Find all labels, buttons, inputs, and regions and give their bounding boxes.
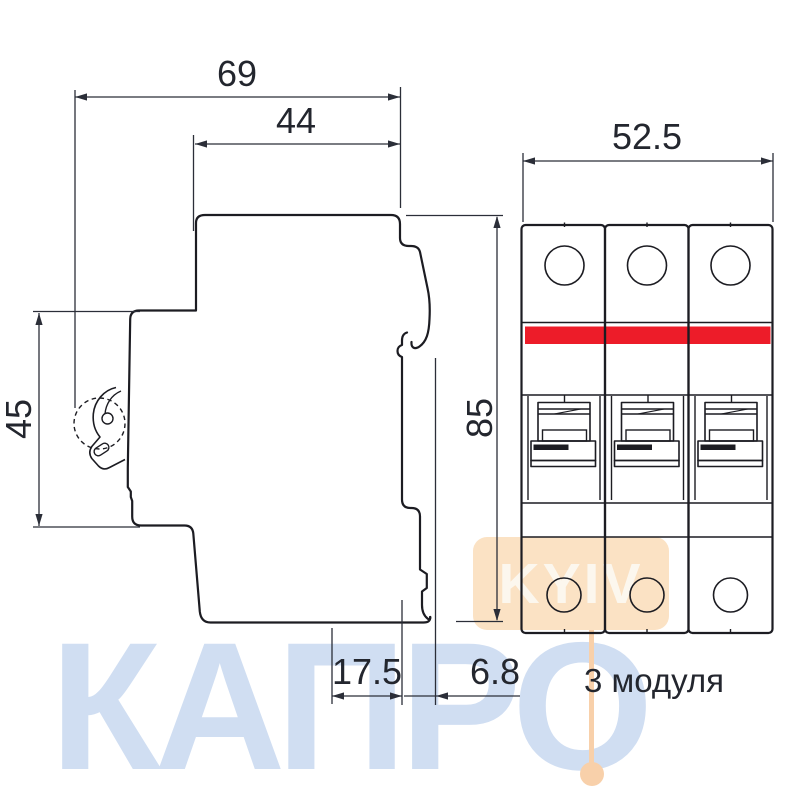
toggle-handle-1 bbox=[528, 396, 600, 501]
module-2-outline bbox=[605, 225, 689, 633]
dimension-17-5: 17.5 bbox=[332, 600, 402, 705]
module-3-outline bbox=[689, 225, 773, 633]
bottom-terminal-screw-3 bbox=[714, 578, 748, 612]
side-view-lower-outline bbox=[128, 311, 430, 623]
toggle-handle-2 bbox=[612, 396, 684, 501]
side-view-front-face bbox=[398, 333, 431, 620]
top-terminal-screw-1 bbox=[545, 246, 584, 285]
toggle-handle-3 bbox=[695, 396, 767, 501]
module-1-outline bbox=[522, 225, 606, 633]
clip-rotation-dashed-circle bbox=[74, 398, 125, 449]
dimension-45: 45 bbox=[0, 312, 140, 528]
top-terminal-screw-2 bbox=[628, 246, 667, 285]
top-terminal-screw-3 bbox=[711, 246, 750, 285]
clip-slot bbox=[93, 442, 111, 458]
dimension-52-5: 52.5 bbox=[523, 116, 773, 222]
dim-label-52-5: 52.5 bbox=[612, 116, 682, 157]
front-view bbox=[522, 223, 773, 634]
technical-drawing-page: КАПРО KYIV bbox=[0, 0, 800, 800]
dim-label-17-5: 17.5 bbox=[332, 651, 402, 692]
dimension-44: 44 bbox=[194, 100, 401, 231]
dim-label-45: 45 bbox=[0, 399, 39, 439]
clip-lever-outline bbox=[90, 388, 125, 469]
dim-label-69: 69 bbox=[217, 53, 257, 94]
modules-caption: 3 модуля bbox=[584, 662, 724, 699]
dim-label-6-8: 6.8 bbox=[470, 651, 520, 692]
dim-label-85: 85 bbox=[459, 398, 500, 438]
clip-screw-hole bbox=[102, 413, 113, 424]
clip-lever-inner-arc bbox=[105, 391, 121, 414]
red-band bbox=[525, 327, 771, 345]
side-view-upper-outline bbox=[196, 215, 430, 348]
bottom-terminal-screw-2 bbox=[630, 578, 664, 612]
dimension-69: 69 bbox=[75, 53, 401, 408]
dim-label-44: 44 bbox=[276, 100, 316, 141]
side-view bbox=[74, 215, 430, 623]
bottom-terminal-screw-1 bbox=[547, 578, 581, 612]
dimension-drawing: 69 44 52.5 45 85 bbox=[0, 0, 800, 800]
